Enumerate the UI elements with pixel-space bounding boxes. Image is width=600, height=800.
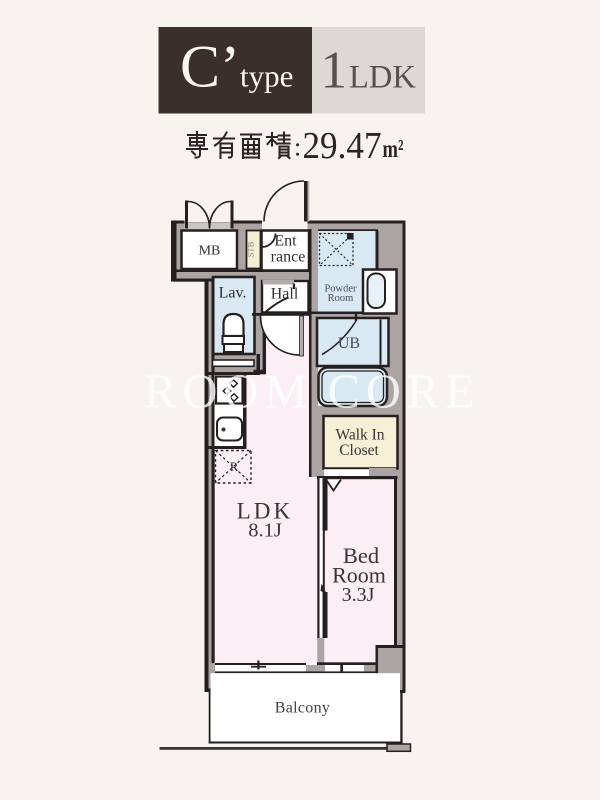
svg-text:Lav.: Lav. [219, 285, 247, 302]
svg-text:3.3J: 3.3J [342, 584, 375, 606]
svg-text:Ent: Ent [274, 233, 297, 250]
svg-text:Room: Room [328, 293, 354, 304]
svg-text:Balcony: Balcony [275, 700, 330, 717]
svg-text:rance: rance [271, 249, 306, 266]
svg-text:ROOMCORE: ROOMCORE [144, 366, 481, 419]
svg-text:Closet: Closet [339, 442, 379, 459]
svg-text:8.1J: 8.1J [248, 520, 282, 542]
svg-text:MB: MB [199, 244, 221, 259]
svg-text:Walk In: Walk In [335, 427, 384, 444]
svg-text:29.47: 29.47 [303, 125, 382, 167]
svg-text::: : [294, 133, 301, 162]
svg-text:STB: STB [246, 241, 256, 257]
svg-text:m²: m² [383, 136, 404, 163]
svg-text:R: R [230, 460, 239, 474]
svg-text:UB: UB [338, 335, 360, 352]
